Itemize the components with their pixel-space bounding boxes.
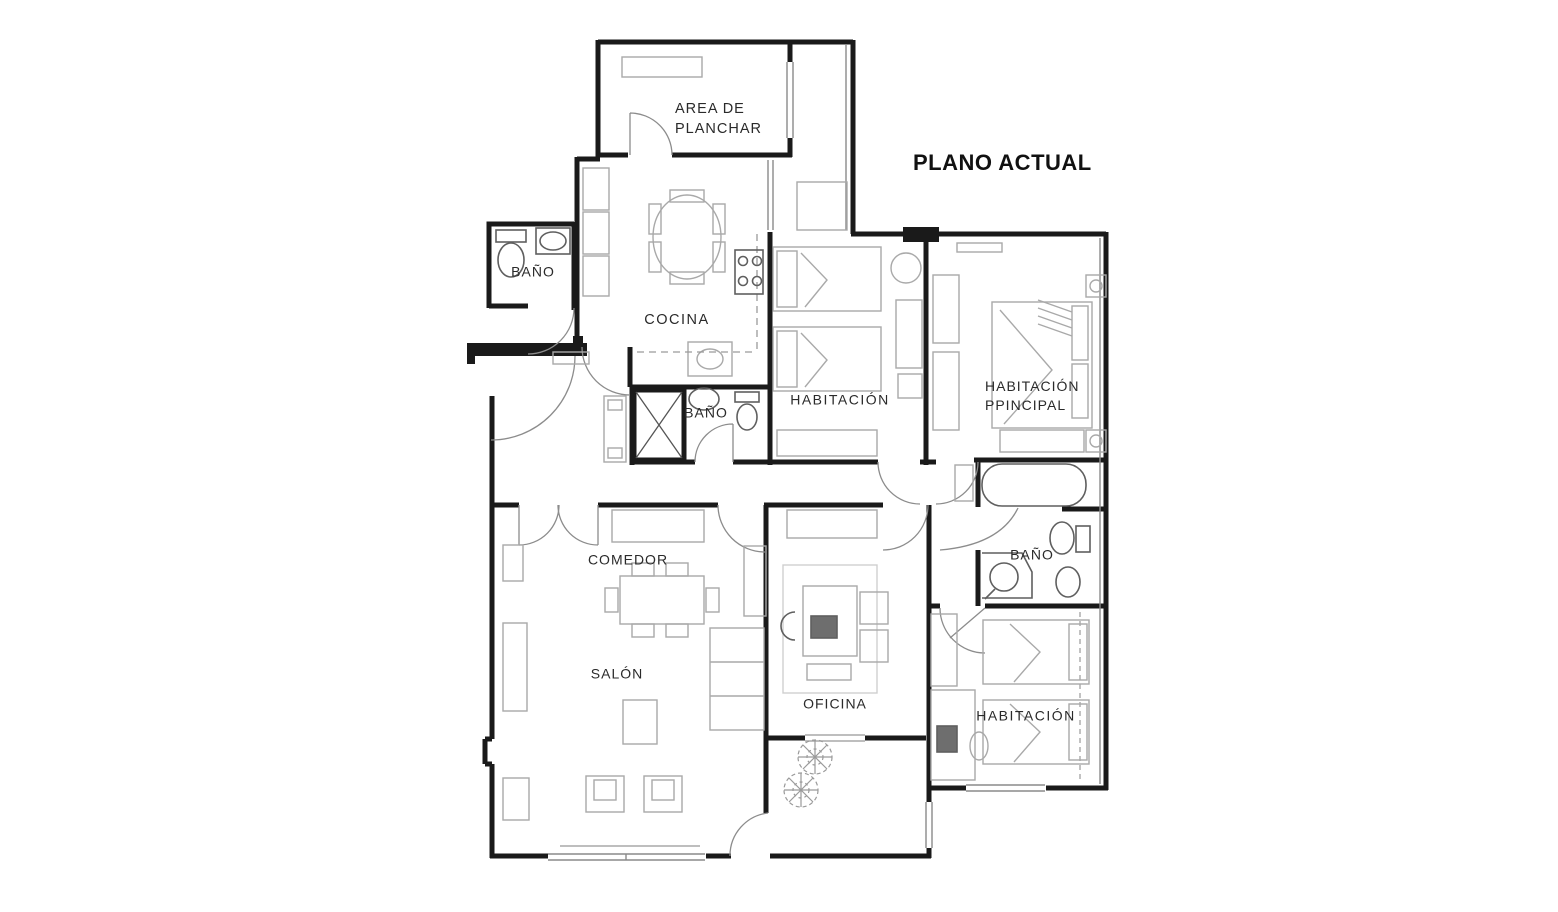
room-label-oficina: OFICINA: [803, 695, 867, 714]
floor-plan-page: PLANO ACTUAL: [0, 0, 1558, 912]
furniture: [503, 57, 1106, 846]
room-label-bano-top-left: BAÑO: [511, 263, 555, 282]
shaft-cross: [636, 392, 682, 458]
room-label-bano-right: BAÑO: [1010, 546, 1054, 565]
room-label-comedor: COMEDOR: [588, 551, 668, 570]
room-label-habitacion-top: HABITACIÓN: [790, 391, 890, 410]
room-label-area-de-planchar: AREA DE PLANCHAR: [675, 100, 762, 139]
room-label-habitacion-bottom: HABITACIÓN: [976, 707, 1076, 726]
plant-icons: [784, 740, 832, 807]
room-label-bano-middle: BAÑO: [684, 404, 728, 423]
room-label-salon: SALÓN: [591, 665, 643, 684]
kitchen-counter-dashed: [632, 234, 757, 352]
room-label-cocina: COCINA: [644, 311, 709, 331]
walls: [485, 40, 1108, 858]
room-label-habitacion-principal: HABITACIÓN PPINCIPAL: [985, 377, 1080, 415]
floor-plan-drawing: [0, 0, 1558, 912]
